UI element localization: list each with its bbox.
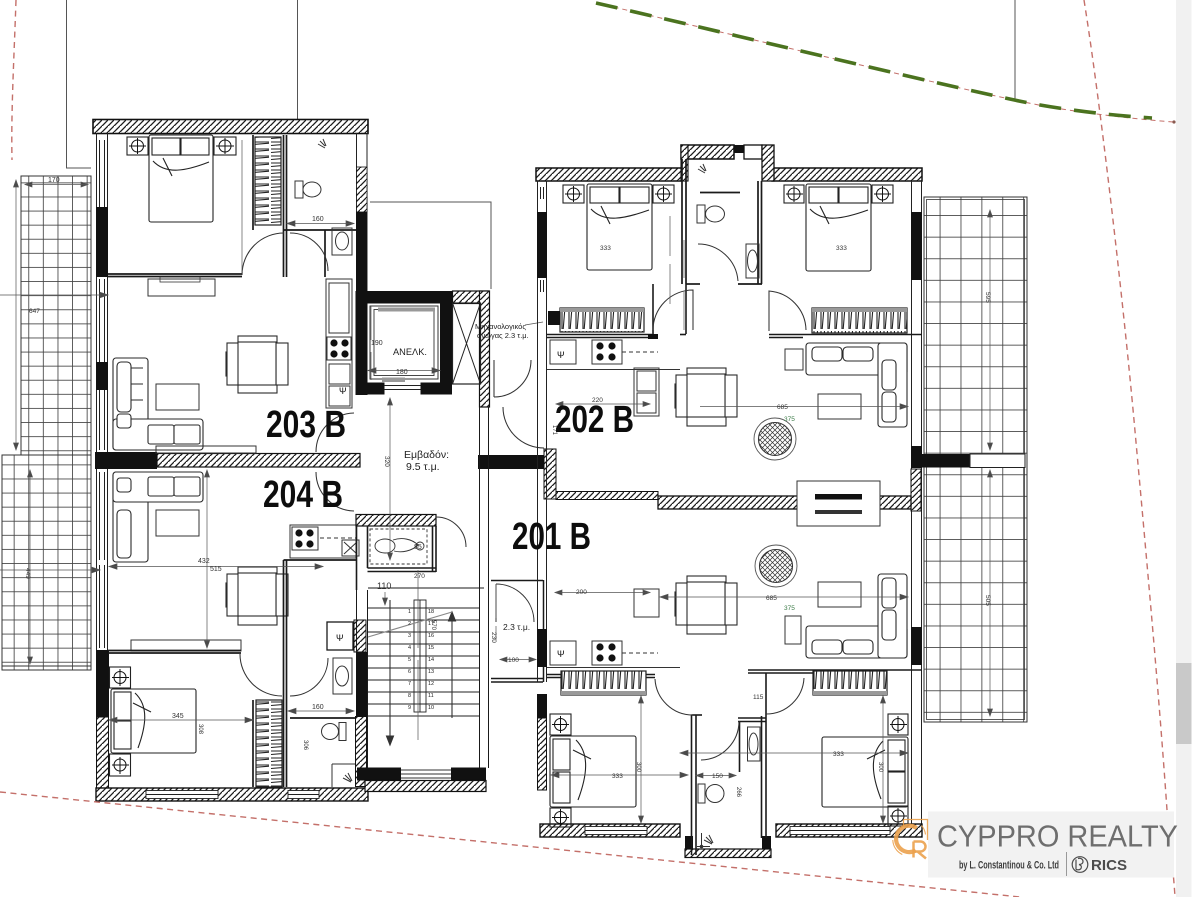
- svg-text:10: 10: [428, 705, 434, 711]
- svg-text:270: 270: [414, 573, 425, 580]
- svg-text:13: 13: [428, 669, 434, 675]
- svg-text:300: 300: [635, 762, 641, 773]
- svg-text:CYPPRO REALTY: CYPPRO REALTY: [937, 819, 1178, 854]
- svg-text:Ψ: Ψ: [339, 386, 347, 396]
- svg-text:by L. Constantinou & Co. Ltd: by L. Constantinou & Co. Ltd: [959, 860, 1059, 872]
- svg-text:2.3 τ.μ.: 2.3 τ.μ.: [503, 622, 530, 632]
- svg-text:2: 2: [408, 621, 411, 627]
- svg-text:306: 306: [302, 740, 308, 751]
- svg-text:150: 150: [712, 773, 723, 780]
- svg-text:12: 12: [428, 681, 434, 687]
- svg-text:7: 7: [408, 681, 411, 687]
- svg-text:115: 115: [753, 694, 764, 701]
- svg-text:110: 110: [377, 581, 391, 591]
- svg-text:203 B: 203 B: [266, 404, 346, 446]
- svg-text:200: 200: [576, 589, 587, 596]
- svg-text:266: 266: [735, 787, 741, 798]
- svg-text:201 B: 201 B: [512, 516, 591, 558]
- svg-text:ΑΝΕΛΚ.: ΑΝΕΛΚ.: [393, 347, 427, 358]
- svg-text:14: 14: [428, 657, 434, 663]
- svg-text:647: 647: [29, 308, 40, 315]
- svg-text:15: 15: [428, 645, 434, 651]
- svg-text:685: 685: [777, 404, 788, 411]
- svg-text:300: 300: [877, 762, 883, 773]
- svg-text:375: 375: [784, 605, 795, 612]
- svg-text:6: 6: [408, 669, 411, 675]
- svg-text:Ψ: Ψ: [557, 350, 565, 360]
- svg-text:Ψ: Ψ: [336, 633, 344, 643]
- svg-text:202 B: 202 B: [555, 399, 634, 441]
- svg-text:333: 333: [612, 773, 623, 780]
- svg-text:180: 180: [396, 369, 408, 376]
- svg-text:9: 9: [408, 705, 411, 711]
- svg-text:204 B: 204 B: [263, 474, 343, 516]
- svg-text:160: 160: [312, 704, 324, 711]
- svg-text:515: 515: [210, 566, 222, 573]
- svg-text:449: 449: [24, 568, 31, 579]
- svg-text:85: 85: [414, 544, 422, 551]
- svg-text:170: 170: [48, 177, 60, 184]
- svg-text:345: 345: [172, 713, 184, 720]
- svg-text:333: 333: [600, 245, 611, 252]
- svg-text:RICS: RICS: [1091, 857, 1127, 874]
- svg-text:3: 3: [408, 633, 411, 639]
- svg-text:11: 11: [428, 693, 434, 699]
- svg-text:9.5 τ.μ.: 9.5 τ.μ.: [406, 461, 440, 473]
- svg-text:8: 8: [408, 693, 411, 699]
- svg-text:595: 595: [984, 292, 991, 303]
- svg-text:18: 18: [428, 609, 434, 615]
- svg-text:16: 16: [428, 633, 434, 639]
- svg-text:685: 685: [766, 595, 777, 602]
- svg-text:230: 230: [490, 632, 497, 643]
- svg-text:505: 505: [984, 595, 991, 606]
- svg-text:4: 4: [408, 645, 411, 651]
- svg-text:333: 333: [833, 751, 844, 758]
- svg-text:100: 100: [508, 657, 519, 664]
- svg-text:375: 375: [784, 416, 795, 423]
- svg-text:ανώγας 2.3 τ.μ.: ανώγας 2.3 τ.μ.: [477, 331, 529, 340]
- svg-text:320: 320: [383, 456, 390, 467]
- svg-text:Μηχανολογικός: Μηχανολογικός: [475, 322, 526, 331]
- svg-text:190: 190: [371, 340, 383, 347]
- svg-text:570: 570: [430, 620, 436, 631]
- svg-text:Εμβαδόν:: Εμβαδόν:: [404, 449, 449, 461]
- svg-text:308: 308: [197, 724, 203, 735]
- svg-text:432: 432: [198, 558, 210, 565]
- svg-text:333: 333: [836, 245, 847, 252]
- svg-text:Ψ: Ψ: [557, 649, 565, 659]
- svg-text:5: 5: [408, 657, 411, 663]
- svg-text:160: 160: [312, 216, 324, 223]
- svg-text:1: 1: [408, 609, 411, 615]
